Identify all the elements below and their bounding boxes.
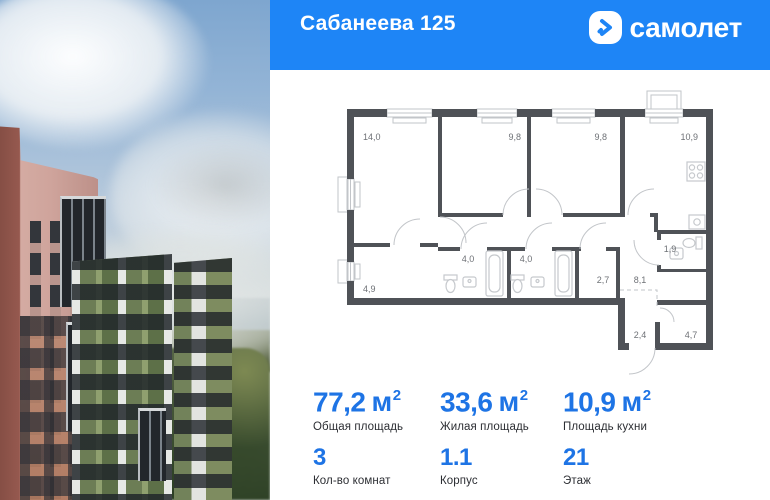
- zone-dashed-line: [620, 290, 657, 308]
- room-area-label: 10,9: [680, 132, 698, 142]
- stat-rooms-count: 3 Кол-во комнат: [313, 445, 438, 487]
- project-title: Сабанеева 125: [300, 12, 456, 36]
- stat-building: 1.1 Корпус: [440, 445, 565, 487]
- stat-label: Жилая площадь: [440, 421, 565, 433]
- room-area-label: 8,1: [634, 275, 647, 285]
- building-green-right: [174, 258, 232, 500]
- stat-living-area: 33,6м2 Жилая площадь: [440, 382, 565, 433]
- room-area-label: 9,8: [594, 132, 607, 142]
- stat-value: 1.1: [440, 445, 565, 471]
- stove-icon: [687, 162, 705, 181]
- toilet-icon: [444, 275, 457, 293]
- stat-kitchen-area: 10,9м2 Площадь кухни: [563, 382, 688, 433]
- stat-value: 3: [313, 445, 438, 471]
- project-photo: [0, 0, 270, 500]
- room-area-label: 9,8: [508, 132, 521, 142]
- toilet-icon: [683, 237, 702, 249]
- bathtub-icon: [486, 251, 503, 296]
- samolet-arrow-icon: [589, 11, 622, 44]
- bathtub-icon: [555, 251, 572, 296]
- brand-name: самолет: [630, 11, 742, 44]
- walls: [347, 109, 713, 350]
- listing-panel: Сабанеева 125 самолет: [270, 0, 770, 500]
- header: Сабанеева 125 самолет: [270, 0, 770, 70]
- kitchen-sink-icon: [689, 215, 705, 229]
- toilet-icon: [511, 275, 524, 293]
- sink-icon: [531, 277, 544, 287]
- stat-value: 21: [563, 445, 688, 471]
- stat-value: 10,9м2: [563, 382, 688, 417]
- stat-label: Корпус: [440, 475, 565, 487]
- stat-label: Общая площадь: [313, 421, 438, 433]
- balcony-glass-box: [138, 408, 166, 481]
- balcony-outline: [647, 91, 681, 110]
- samolet-logo[interactable]: самолет: [589, 11, 742, 44]
- stat-label: Этаж: [563, 475, 688, 487]
- stat-label: Кол-во комнат: [313, 475, 438, 487]
- stat-label: Площадь кухни: [563, 421, 688, 433]
- floor-plan: 14,0 9,8 9,8 10,9 4,9 4,0 4,0 2,7 8,1 1,…: [335, 80, 725, 385]
- entrance-door-arc: [629, 348, 655, 374]
- room-area-label: 1,9: [664, 244, 677, 254]
- stat-floor: 21 Этаж: [563, 445, 688, 487]
- stat-total-area: 77,2м2 Общая площадь: [313, 382, 438, 433]
- room-area-label: 14,0: [363, 132, 381, 142]
- room-area-label: 4,0: [462, 254, 475, 264]
- room-area-label: 4,9: [363, 284, 376, 294]
- sink-icon: [463, 277, 476, 287]
- room-area-label: 2,4: [634, 330, 647, 340]
- room-area-label: 4,7: [685, 330, 698, 340]
- room-area-label: 4,0: [520, 254, 533, 264]
- fixtures: [444, 162, 705, 296]
- stat-value: 77,2м2: [313, 382, 438, 417]
- stat-value: 33,6м2: [440, 382, 565, 417]
- room-area-label: 2,7: [597, 275, 610, 285]
